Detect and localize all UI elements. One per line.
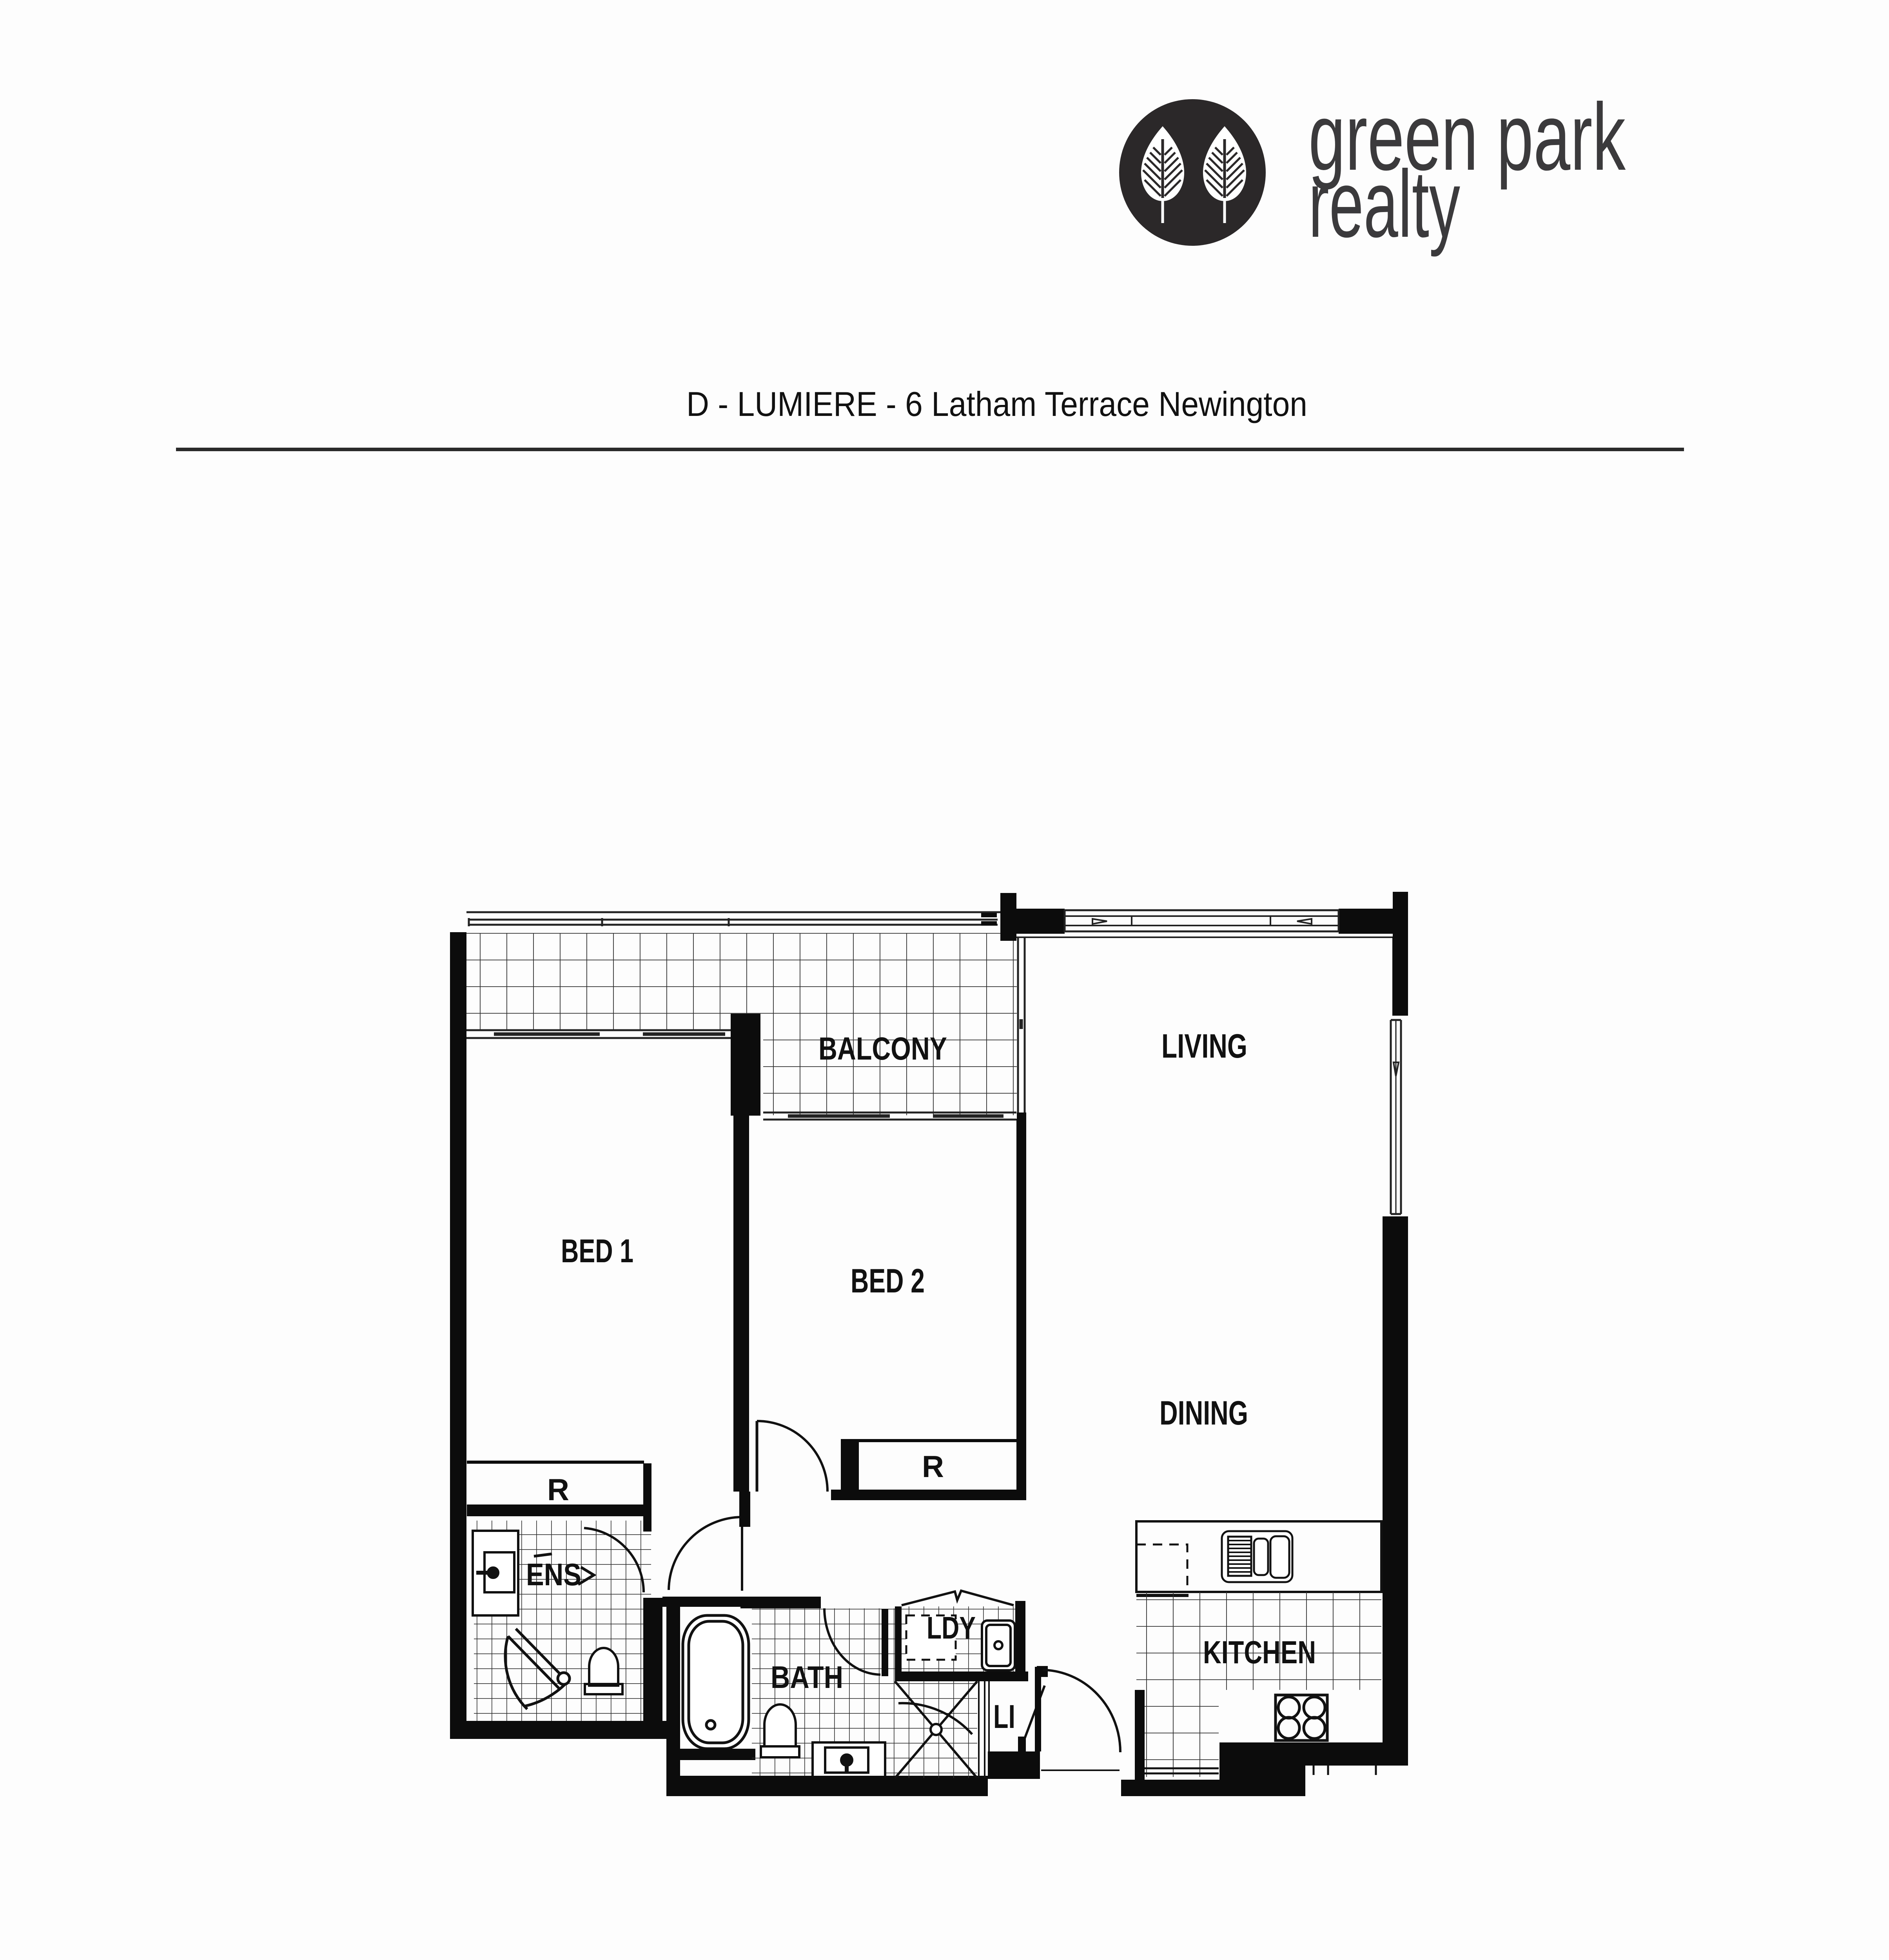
svg-text:realty: realty [1308,151,1460,257]
svg-text:R: R [922,1449,944,1484]
svg-text:D - LUMIERE - 6 Latham Terrace: D - LUMIERE - 6 Latham Terrace Newington [686,385,1307,423]
svg-text:ENS: ENS [526,1557,581,1592]
svg-text:R: R [547,1472,569,1507]
svg-text:BATH: BATH [771,1660,843,1695]
svg-text:LDY: LDY [927,1610,976,1645]
svg-text:KITCHEN: KITCHEN [1203,1635,1316,1670]
svg-text:BED 1: BED 1 [561,1232,633,1269]
svg-text:DINING: DINING [1160,1394,1248,1432]
svg-text:LIVING: LIVING [1161,1027,1247,1065]
svg-text:LI: LI [993,1698,1015,1735]
svg-text:BED 2: BED 2 [851,1262,925,1300]
svg-text:BALCONY: BALCONY [818,1031,947,1067]
